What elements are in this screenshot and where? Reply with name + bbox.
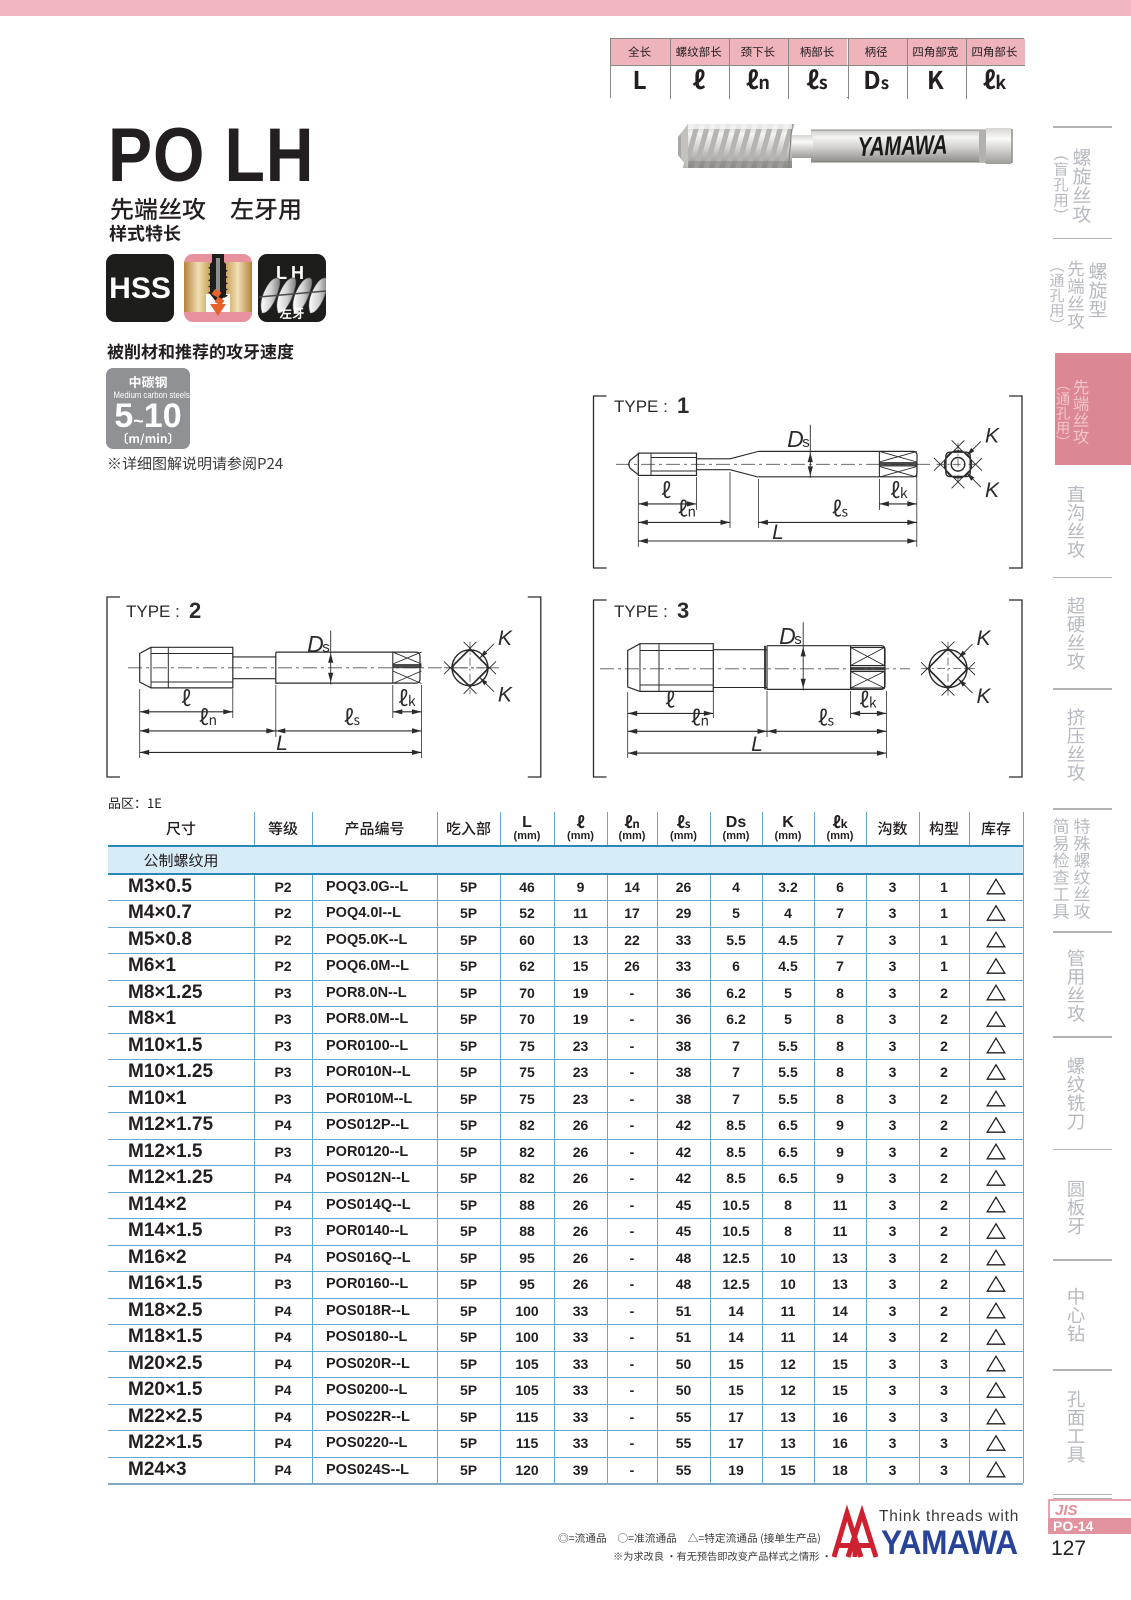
svg-text:K: K — [498, 627, 513, 650]
svg-text:s: s — [794, 631, 802, 648]
svg-text:K: K — [498, 684, 513, 707]
svg-text:YAMAWA: YAMAWA — [857, 130, 947, 163]
svg-text:1: 1 — [677, 393, 689, 418]
svg-text:L: L — [276, 732, 288, 755]
svg-text:K: K — [985, 479, 1000, 502]
svg-text:D: D — [307, 631, 324, 657]
svg-text:2: 2 — [189, 598, 201, 623]
svg-text:K: K — [985, 424, 1000, 447]
svg-text:TYPE :: TYPE : — [614, 602, 668, 621]
svg-text:K: K — [976, 627, 991, 650]
svg-text:L: L — [751, 733, 763, 756]
svg-text:TYPE :: TYPE : — [614, 397, 668, 416]
svg-text:L: L — [772, 521, 784, 544]
svg-text:TYPE :: TYPE : — [126, 602, 180, 621]
svg-text:D: D — [779, 623, 796, 649]
svg-text:3: 3 — [677, 598, 689, 623]
svg-text:LH: LH — [276, 263, 308, 283]
svg-text:D: D — [787, 426, 804, 452]
svg-text:s: s — [802, 434, 810, 451]
svg-text:HSS: HSS — [109, 272, 171, 305]
svg-text:K: K — [976, 685, 991, 708]
svg-text:s: s — [322, 639, 330, 656]
